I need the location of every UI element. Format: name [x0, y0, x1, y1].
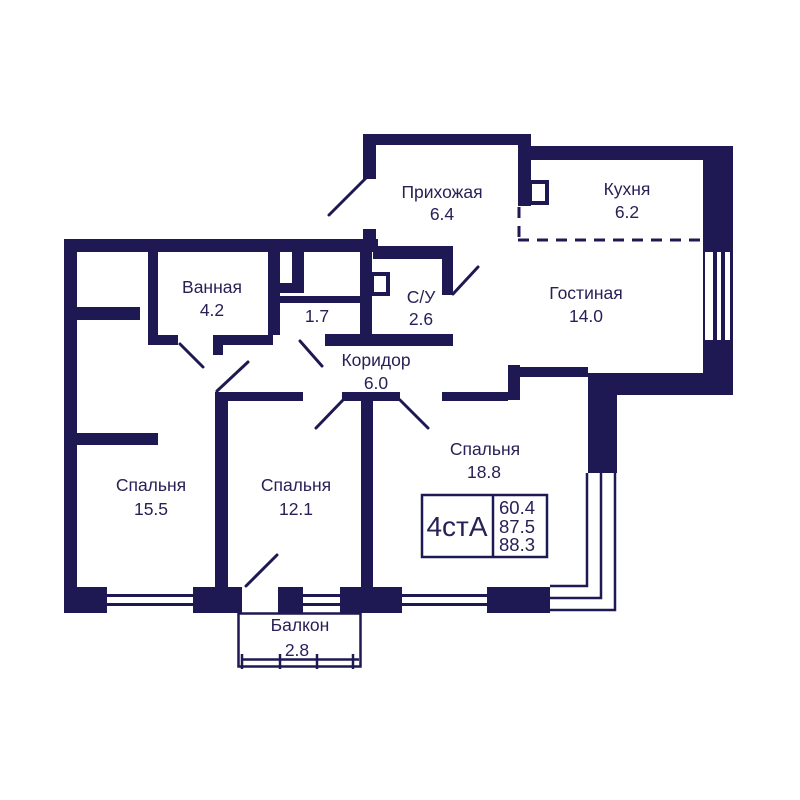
wall-closet-bar: [292, 251, 304, 288]
wall-storage-top: [275, 296, 365, 303]
room-area-kitchen: 6.2: [615, 202, 639, 222]
wall-hall-top: [363, 134, 530, 145]
plan-area-total: 88.3: [499, 534, 535, 555]
wall-bedroom18-top: [442, 392, 508, 401]
wall-bedroom18-right: [588, 395, 617, 473]
wall-top-band: [64, 239, 378, 252]
vent-shaft-kitchen: [530, 182, 547, 203]
window-bedroom12: [303, 587, 340, 613]
floor-plan: Прихожая 6.4 Кухня 6.2 Гостиная 14.0 С/У…: [0, 0, 800, 800]
room-name-prihozhaya: Прихожая: [401, 182, 482, 202]
room-area-corridor: 6.0: [364, 373, 389, 393]
room-area-bedroom12: 12.1: [279, 499, 313, 519]
room-area-bedroom15: 15.5: [134, 499, 168, 519]
room-area-prihozhaya: 6.4: [430, 204, 455, 224]
wall-closet-bottom: [268, 283, 304, 293]
room-name-bath: Ванная: [182, 277, 242, 297]
wall-outer-left: [64, 239, 77, 613]
wall-corridor-bottom-right: [342, 392, 400, 401]
kitchen-dashed-boundary: [518, 207, 701, 240]
wall-kitchen-top: [530, 146, 733, 160]
wall-corridor-bottom-left: [215, 392, 303, 401]
wall-bath-bottom-left: [148, 335, 178, 345]
loggia-outline: [550, 473, 615, 610]
wall-bath-bottom-right: [213, 335, 273, 345]
room-area-living: 14.0: [569, 306, 603, 326]
room-name-bedroom12: Спальня: [261, 475, 331, 495]
plan-area-living-total: 60.4: [499, 497, 535, 518]
wall-bedroom15-top: [64, 433, 158, 445]
wall-corridor-top: [325, 334, 453, 346]
door-bath: [180, 344, 203, 367]
floor-plan-page: Прихожая 6.4 Кухня 6.2 Гостиная 14.0 С/У…: [0, 0, 800, 800]
room-name-kitchen: Кухня: [604, 179, 651, 199]
wall-bedrooms-divider: [215, 392, 228, 587]
door-su: [453, 267, 478, 294]
wall-living-bottom: [588, 373, 733, 395]
room-area-bedroom18: 18.8: [467, 462, 501, 482]
room-area-storage: 1.7: [305, 306, 329, 326]
room-name-balcony: Балкон: [271, 615, 330, 635]
wall-step-vertical: [508, 365, 520, 400]
wall-right-upper: [703, 146, 733, 252]
vent-shaft-su: [372, 274, 388, 294]
door-balcony: [246, 555, 277, 586]
plan-info-box: 4стА 60.4 87.5 88.3: [422, 495, 547, 557]
room-name-living: Гостиная: [549, 283, 622, 303]
door-bedroom12: [316, 400, 343, 428]
plan-type-label: 4стА: [426, 511, 487, 542]
door-entrance: [329, 178, 366, 215]
wall-su-right: [442, 246, 453, 295]
room-name-bedroom18: Спальня: [450, 439, 520, 459]
room-name-corridor: Коридор: [341, 350, 410, 370]
door-bedroom18: [400, 400, 428, 428]
wall-bedroom12-18-divider: [361, 400, 373, 587]
window-bedroom18: [402, 587, 487, 613]
room-name-bedroom15: Спальня: [116, 475, 186, 495]
room-name-su: С/У: [407, 287, 437, 307]
window-bedroom15: [107, 587, 193, 613]
door-bedroom15-wing: [217, 362, 248, 391]
wall-hall-left-upper: [363, 134, 376, 179]
window-living-right: [703, 252, 733, 340]
wall-su-top: [373, 246, 453, 259]
door-storage: [300, 341, 322, 366]
room-area-balcony: 2.8: [285, 640, 309, 660]
room-area-su: 2.6: [409, 309, 433, 329]
wall-bath-left: [148, 250, 158, 345]
wall-bath-stub: [213, 345, 223, 355]
wall-bedroom18-topthin: [520, 367, 588, 377]
room-area-bath: 4.2: [200, 300, 224, 320]
wall-hallway-stub: [64, 307, 140, 320]
